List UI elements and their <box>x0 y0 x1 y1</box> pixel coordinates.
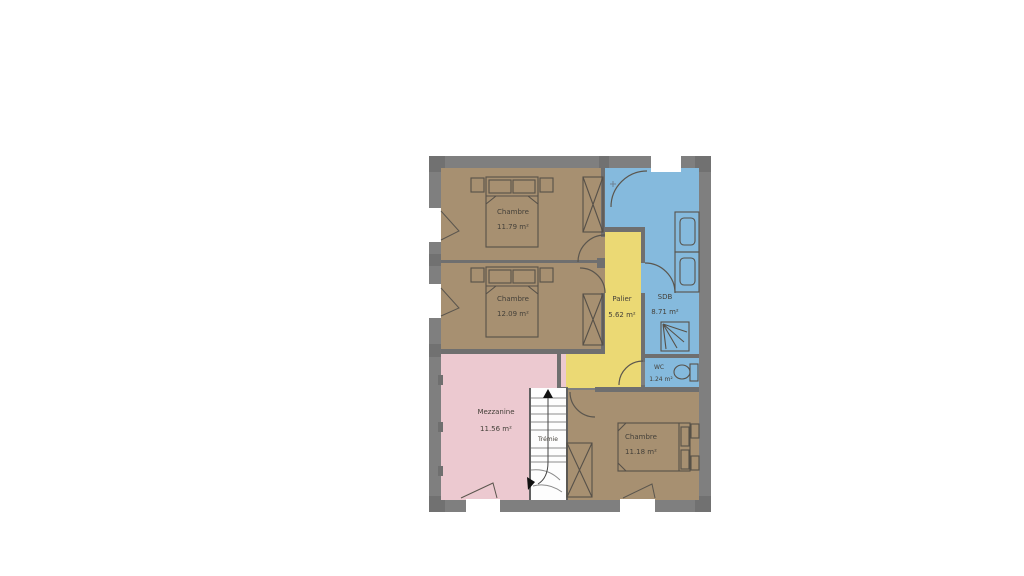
label-landing-area: 5.62 m² <box>608 311 636 319</box>
label-bedroom-3-area: 11.18 m² <box>625 448 657 456</box>
label-bedroom-1-area: 11.79 m² <box>497 223 529 231</box>
window-bottom-1 <box>466 499 500 516</box>
room-fill-landing-lower <box>561 352 641 388</box>
label-bathroom-name: SDB <box>658 293 673 301</box>
label-wc-area: 1.24 m² <box>649 376 673 383</box>
window-top <box>651 152 681 172</box>
label-wc-name: WC <box>654 364 664 371</box>
window-left-2 <box>424 284 441 318</box>
floor-plan-page: Chambre 11.79 m² Chambre 12.09 m² Palier… <box>0 0 1024 576</box>
label-bedroom-2-area: 12.09 m² <box>497 310 529 318</box>
label-stairwell: Trémie <box>537 436 558 443</box>
label-mezzanine-name: Mezzanine <box>477 408 514 416</box>
window-left-1 <box>424 208 441 242</box>
label-bedroom-2-name: Chambre <box>497 295 529 303</box>
window-bottom-2 <box>620 499 655 516</box>
label-landing-name: Palier <box>612 295 631 303</box>
label-bedroom-1-name: Chambre <box>497 208 529 216</box>
label-mezzanine-area: 11.56 m² <box>480 425 512 433</box>
room-fill-bedroom-2 <box>441 263 605 354</box>
stairwell <box>527 388 568 500</box>
label-bedroom-3-name: Chambre <box>625 433 657 441</box>
floor-plan-drawing: Chambre 11.79 m² Chambre 12.09 m² Palier… <box>0 0 1024 576</box>
label-bathroom-area: 8.71 m² <box>651 308 679 316</box>
